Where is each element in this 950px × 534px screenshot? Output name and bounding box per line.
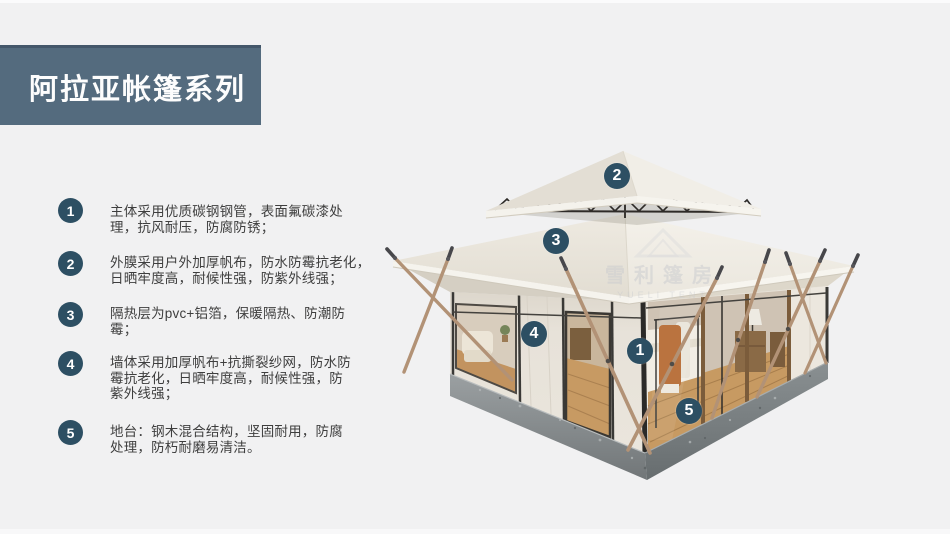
- page-top-edge: [0, 0, 950, 3]
- feature-badge-5: 5: [58, 420, 83, 445]
- callout-badge-4: 4: [521, 321, 547, 347]
- callout-badge-1: 1: [627, 338, 653, 364]
- feature-badge-2: 2: [58, 251, 83, 276]
- callout-badge-3: 3: [543, 228, 569, 254]
- feature-badge-1: 1: [58, 198, 83, 223]
- feature-text-5: 地台：钢木混合结构，坚固耐用，防腐 处理，防朽耐磨易清洁。: [110, 424, 378, 455]
- feature-text-2: 外膜采用户外加厚帆布，防水防霉抗老化， 日晒牢度高，耐候性强，防紫外线强；: [110, 255, 378, 286]
- page-title: 阿拉亚帐篷系列: [29, 66, 246, 108]
- callout-badge-5: 5: [676, 398, 702, 424]
- tent-illustration: [385, 135, 950, 534]
- callout-badge-2: 2: [604, 163, 630, 189]
- feature-badge-4: 4: [58, 351, 83, 376]
- feature-text-1: 主体采用优质碳钢钢管，表面氟碳漆处 理，抗风耐压，防腐防锈；: [110, 204, 378, 235]
- feature-text-3: 隔热层为pvc+铝箔，保暖隔热、防潮防 霉；: [110, 306, 378, 337]
- header-band: 阿拉亚帐篷系列: [0, 45, 261, 125]
- feature-badge-3: 3: [58, 302, 83, 327]
- feature-text-4: 墙体采用加厚帆布+抗撕裂纱网，防水防 霉抗老化，日晒牢度高，耐候性强，防 紫外线…: [110, 355, 378, 402]
